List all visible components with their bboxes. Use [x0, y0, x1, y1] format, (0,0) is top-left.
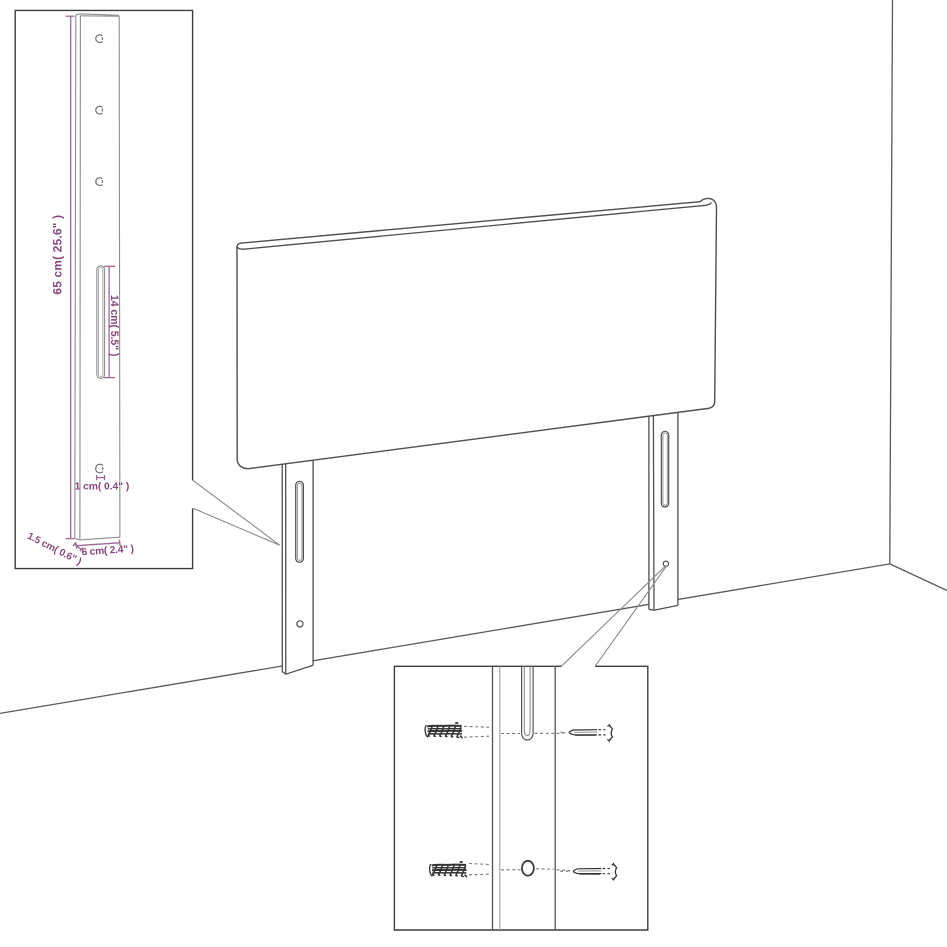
svg-text:65 cm( 25.6" ): 65 cm( 25.6" ) [51, 215, 65, 295]
svg-text:14 cm( 5.5" ): 14 cm( 5.5" ) [108, 295, 120, 356]
svg-text:1 cm( 0.4" ): 1 cm( 0.4" ) [75, 482, 130, 493]
